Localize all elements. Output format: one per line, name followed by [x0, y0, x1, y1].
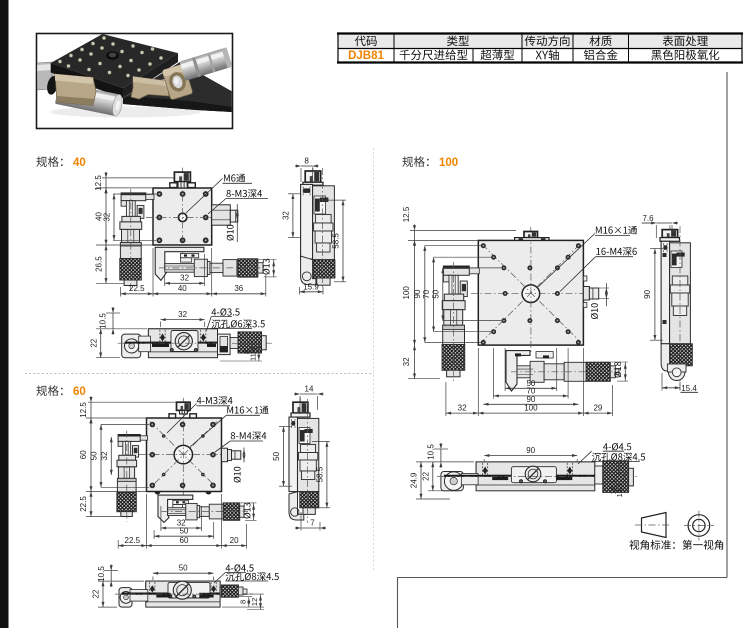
- svg-text:58.5: 58.5: [315, 466, 324, 482]
- svg-text:40: 40: [178, 284, 187, 293]
- svg-text:22: 22: [92, 589, 101, 598]
- svg-text:15.1: 15.1: [615, 483, 624, 498]
- svg-text:22.5: 22.5: [125, 536, 141, 545]
- svg-text:32: 32: [103, 212, 112, 221]
- svg-text:8: 8: [239, 600, 248, 604]
- svg-text:12: 12: [250, 598, 259, 606]
- svg-text:12.5: 12.5: [79, 402, 88, 418]
- svg-text:58.5: 58.5: [332, 233, 341, 249]
- svg-text:22: 22: [90, 338, 99, 347]
- svg-text:DJB81: DJB81: [348, 50, 384, 62]
- svg-text:32: 32: [282, 211, 291, 220]
- svg-text:32: 32: [402, 357, 411, 366]
- svg-text:70: 70: [422, 289, 431, 298]
- svg-text:90: 90: [526, 395, 535, 404]
- svg-text:90: 90: [643, 289, 652, 298]
- svg-text:8: 8: [304, 157, 309, 166]
- svg-text:60: 60: [79, 450, 88, 459]
- svg-text:10.5: 10.5: [99, 313, 108, 329]
- svg-text:10.5: 10.5: [97, 566, 106, 582]
- svg-text:32: 32: [100, 451, 109, 460]
- svg-text:60: 60: [180, 536, 189, 545]
- svg-text:60: 60: [73, 386, 86, 398]
- svg-text:15.4: 15.4: [681, 384, 697, 393]
- svg-text:7: 7: [310, 519, 315, 528]
- svg-text:22.5: 22.5: [79, 496, 88, 512]
- svg-text:100: 100: [439, 157, 458, 169]
- svg-text:24.9: 24.9: [410, 472, 419, 488]
- svg-text:50: 50: [179, 527, 188, 536]
- svg-text:22: 22: [421, 471, 430, 480]
- svg-text:15.9: 15.9: [303, 282, 319, 291]
- svg-text:32: 32: [178, 310, 187, 319]
- svg-text:11.1: 11.1: [249, 347, 258, 361]
- svg-text:22.5: 22.5: [129, 284, 145, 293]
- svg-text:90: 90: [413, 289, 422, 298]
- svg-text:50: 50: [179, 564, 188, 573]
- svg-text:20: 20: [230, 536, 239, 545]
- svg-text:90: 90: [526, 446, 535, 455]
- svg-text:29: 29: [593, 404, 602, 413]
- svg-text:100: 100: [402, 286, 411, 300]
- svg-text:36: 36: [234, 284, 243, 293]
- svg-text:14: 14: [305, 385, 314, 394]
- svg-text:32: 32: [180, 274, 189, 283]
- svg-text:32: 32: [458, 404, 467, 413]
- svg-text:50: 50: [272, 451, 281, 460]
- svg-text:50: 50: [90, 451, 99, 460]
- svg-text:7.6: 7.6: [642, 214, 654, 223]
- svg-text:40: 40: [73, 157, 86, 169]
- svg-text:26.5: 26.5: [95, 256, 104, 272]
- svg-text:50: 50: [431, 289, 440, 298]
- svg-text:100: 100: [524, 404, 538, 413]
- svg-text:10.5: 10.5: [427, 444, 436, 460]
- svg-text:12.5: 12.5: [402, 206, 411, 222]
- svg-text:12.5: 12.5: [94, 175, 103, 191]
